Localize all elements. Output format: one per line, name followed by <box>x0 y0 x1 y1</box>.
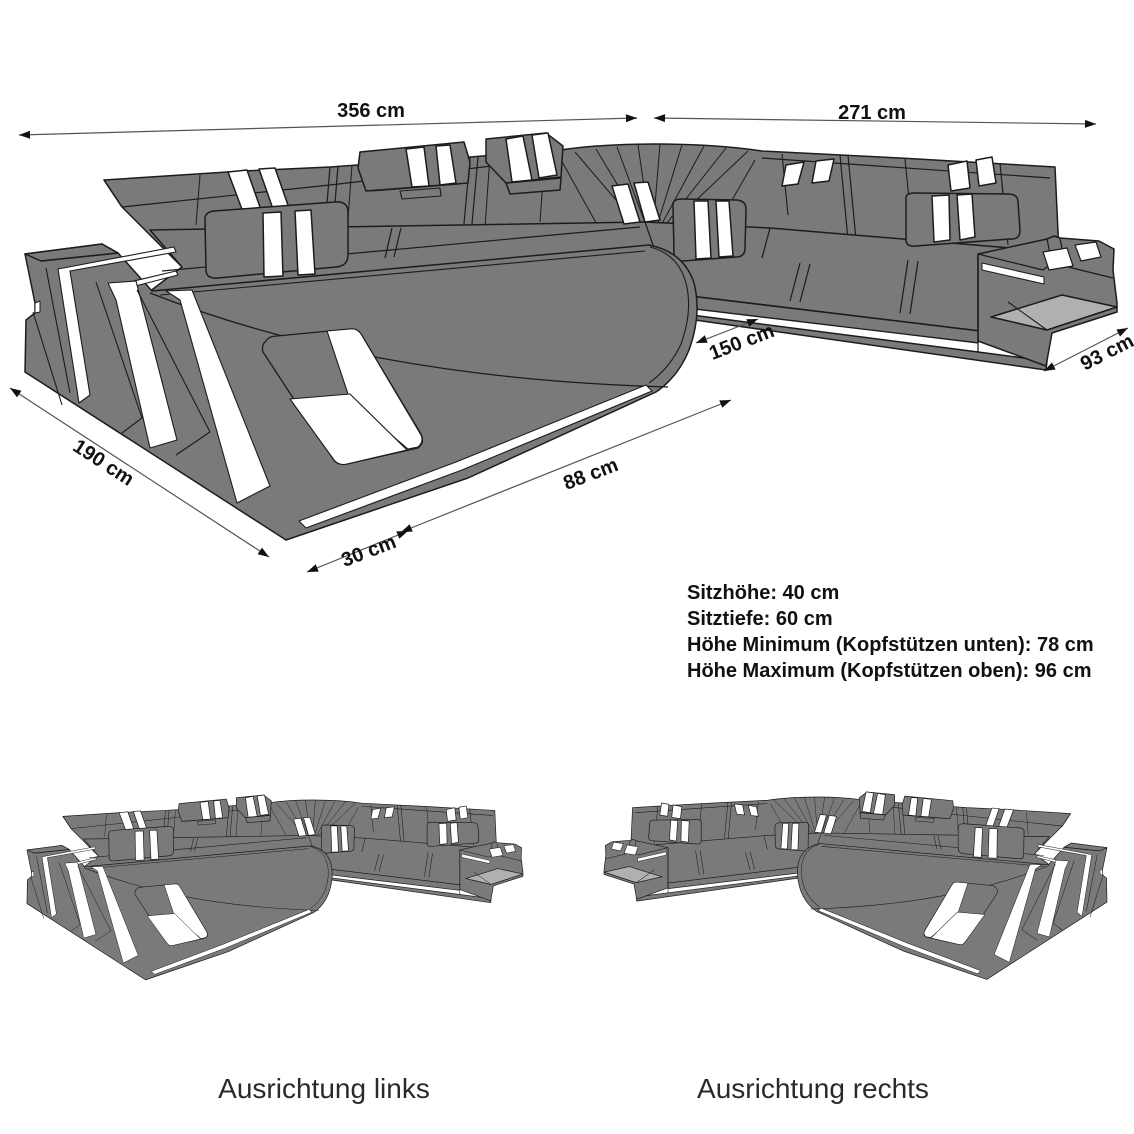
svg-text:93 cm: 93 cm <box>1077 330 1134 375</box>
svg-text:Sitztiefe: 60 cm: Sitztiefe: 60 cm <box>687 608 833 630</box>
svg-text:Ausrichtung links: Ausrichtung links <box>218 1073 430 1104</box>
svg-text:271 cm: 271 cm <box>838 102 906 124</box>
svg-text:Höhe Minimum (Kopfstützen unte: Höhe Minimum (Kopfstützen unten): 78 cm <box>687 634 1094 656</box>
svg-text:Sitzhöhe: 40 cm: Sitzhöhe: 40 cm <box>687 582 839 604</box>
svg-text:88 cm: 88 cm <box>560 454 621 495</box>
svg-text:356 cm: 356 cm <box>337 100 405 122</box>
svg-text:Höhe Maximum (Kopfstützen oben: Höhe Maximum (Kopfstützen oben): 96 cm <box>687 660 1091 682</box>
svg-text:190 cm: 190 cm <box>69 435 138 490</box>
svg-text:30 cm: 30 cm <box>338 531 399 572</box>
svg-text:Ausrichtung rechts: Ausrichtung rechts <box>697 1073 929 1104</box>
